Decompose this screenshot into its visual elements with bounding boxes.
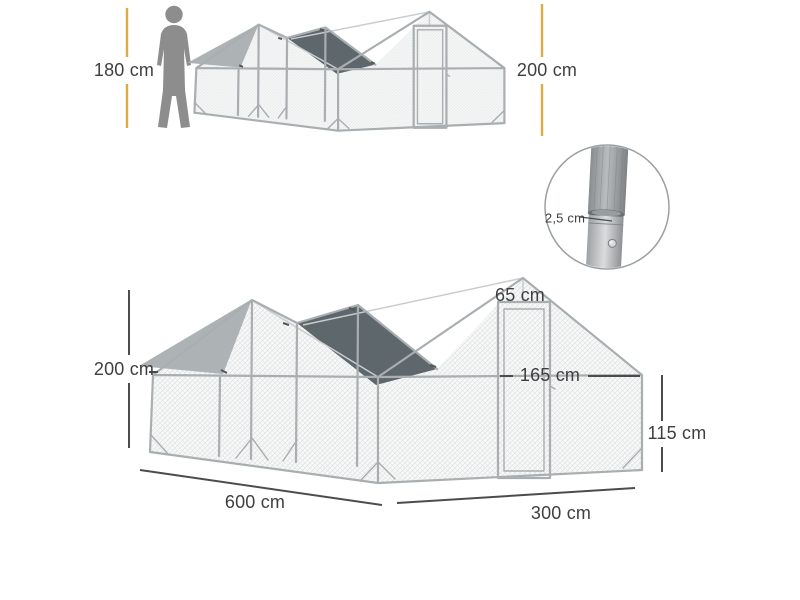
pole-detail-inset [545,139,669,275]
top-cage-illustration [188,12,505,131]
product-dimension-diagram: 180 cm 200 cm 200 cm 65 cm 165 cm 115 cm… [0,0,800,600]
pole-bolt [608,239,616,247]
person-height-label: 180 cm [94,61,154,79]
pole-lower-tube [586,215,624,275]
depth-label: 300 cm [531,504,591,522]
pole-upper-tube [588,139,629,219]
ridge-height-label: 200 cm [94,360,154,378]
side-height-label: 115 cm [648,424,707,442]
depth-line [397,488,635,503]
top-view-height-label: 200 cm [517,61,577,79]
length-label: 600 cm [225,493,285,511]
person-silhouette [157,6,191,128]
diagram-canvas [0,0,800,600]
door-width-label: 65 cm [495,286,545,304]
door-height-label: 165 cm [520,366,580,384]
tube-diameter-label: 2,5 cm [545,212,585,225]
